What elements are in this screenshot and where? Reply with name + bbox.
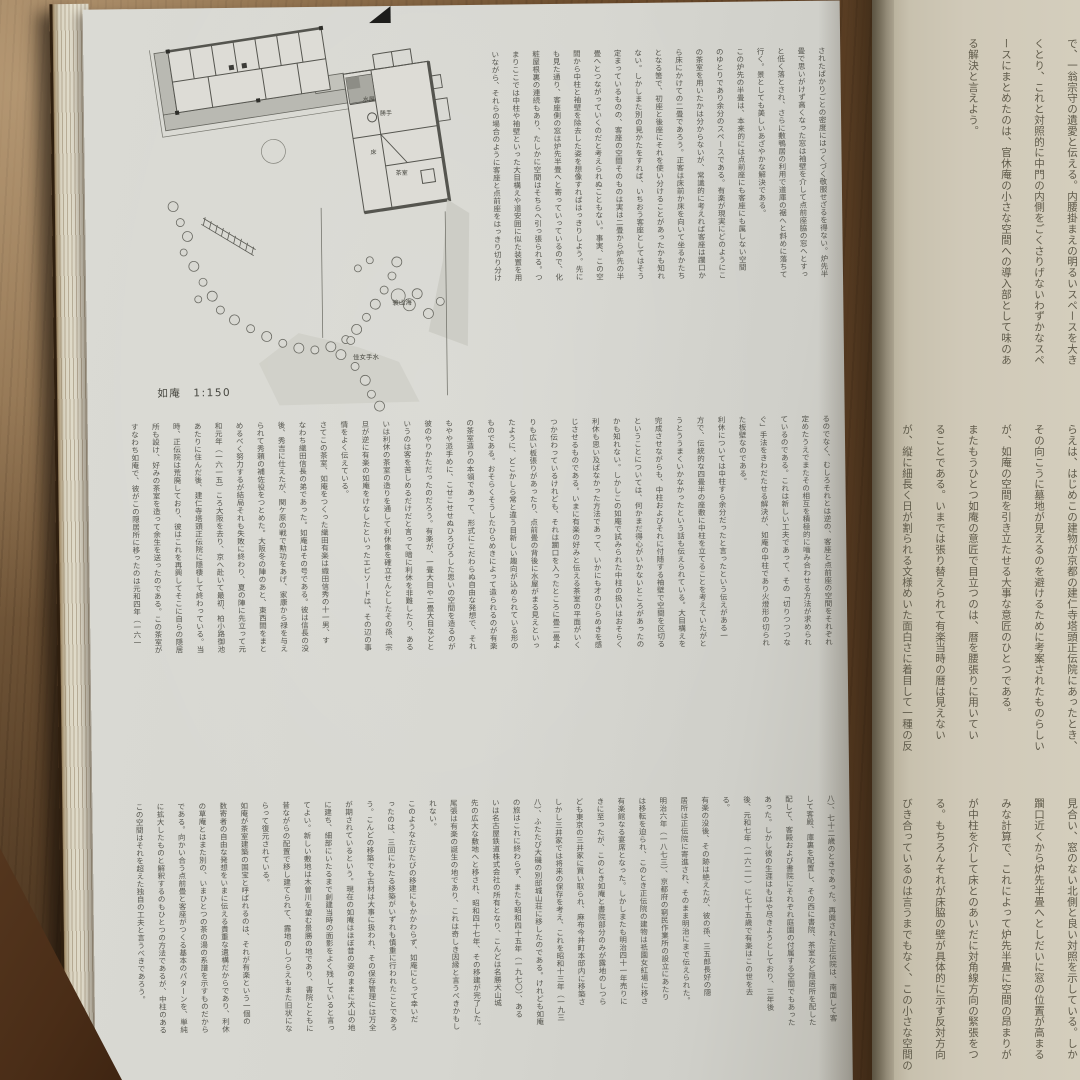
text-column: 八）、ふたたび大磯の別邸城山荘に移したのである。けれども如庵 — [526, 798, 551, 1080]
floor-plan-figure: 水屋 勝手 床 茶室 簑山海 佳女手水 如庵 1:150 — [111, 3, 481, 419]
text-column: あった。しかし彼の生涯はもはや尽きようとしており、三年後 — [757, 795, 782, 1080]
text-column: つか伝わっているけれども、それは躙口を入ったところに畳二畳よ — [542, 418, 567, 770]
text-column: 明治六年（一八七三）、京都府の窮民作業所の設立にあたり — [652, 797, 677, 1080]
text-column: みな計算で、これによって炉先半畳に空間の昂まりが — [989, 798, 1022, 1080]
text-column: りも広い板張りがあったり、点前畳の背後に水屋がまる見えといっ — [521, 418, 546, 770]
stone-pavement — [201, 217, 255, 257]
text-column: 見合い、窓のない北側と良い対照を示している。しか — [1055, 798, 1080, 1080]
text-column: ぐ」手法をきわだたせる解決が、如庵の中柱であり火燈形の切られ — [752, 415, 777, 767]
garden-label-chozu: 佳女手水 — [353, 352, 380, 361]
text-column: に拡大したものと解釈するのもひとつの方法であるが、中柱のある — [149, 803, 174, 1080]
text-column: 有楽館なる宴席となった。しかしまたも明治四十一年売りに — [610, 797, 635, 1080]
left-page: 水屋 勝手 床 茶室 簑山海 佳女手水 如庵 1:150 されたばかりごとの密度… — [83, 0, 853, 1080]
room-label-chashitsu: 茶室 — [396, 169, 408, 177]
text-column: てよい。新しい敷地は木曽川を望む景勝の地であり、書院とともに — [296, 801, 321, 1080]
text-column: 数寄者の自由な発想をいまに伝える貴重な遺構だからであり、利休 — [212, 802, 237, 1080]
right-page-upper-text-block: で、一翁宗守の遺愛と伝える。内腰掛まえの明るいスペースを大きくとり、これと対照的… — [872, 38, 1080, 390]
text-column: 彼のやりかただったのだろう。有楽が、一畳大目や二畳大目などと — [417, 419, 442, 771]
text-column: 後、元和七年（一六二一）に七十五歳で有楽はこの世を去 — [736, 796, 761, 1080]
text-column: すなわち如庵で、彼がこの隠居所に移ったのは元和四年（一六一 — [124, 423, 149, 775]
left-page-upper-text-block: されたばかりごとの密度にはつくづく敬服せざるを得ない。炉先半畳で思いがけず高くな… — [483, 47, 835, 415]
room-label-katte: 勝手 — [380, 109, 392, 117]
text-column: びき合っているのは言うまでもなく、この小さな空間の — [890, 798, 923, 1080]
text-column: らって復元されている。 — [254, 801, 279, 1080]
figure-caption: 如庵 1:150 — [157, 386, 231, 400]
text-column: の草庵とはまた別の、いまひとつの茶の湯の系譜を示すものだから — [191, 802, 216, 1080]
text-column: さてこの茶室、如庵をつくった織田有楽は織田信秀の十一男、す — [312, 421, 337, 773]
text-column: ースにまとめたのは、官休庵の小さな空間への導入部として味のあ — [989, 38, 1022, 390]
text-column: いうのは客を苦しめるだけだと言って暗に利休を非難したり、ある — [396, 420, 421, 772]
room-label-toko: 床 — [370, 148, 376, 156]
text-column: いは利休の茶室の造りを通して利休像を確立せんとしたその孫、宗 — [375, 420, 400, 772]
text-column: ったのは、三回にわたる移築がいずれも慎重に行われたことであろ — [379, 800, 404, 1080]
text-column: 先の広大な敷地へと移され、昭和四十七年、その移建が完了した。 — [463, 799, 488, 1080]
text-column: なわち織田信長の弟であった。如庵はその号である。彼は信長の没 — [291, 421, 316, 773]
text-column: ものである。おそらくそうしたひらめきによって造られるのが有楽 — [480, 419, 505, 771]
text-column: 定めたうえでまたその相互を積極的に嚙み合わせる方法が求められ — [794, 415, 819, 767]
text-column: に建ち、細部にいたるまで創建当時の面影をよく残していると言っ — [317, 801, 342, 1080]
text-column: して客殿、庫裏を配置し、その西に書院、茶室など隠居所を配した — [798, 795, 823, 1080]
left-page-middle-text-block: るのでなく、むしろそれとは逆の、客座と点前座の空間をそれぞれ定めたうえでまたその… — [124, 415, 840, 776]
text-column: この空間はそれを超えた独自の工夫と言うべきであろう。 — [128, 803, 152, 1080]
text-column: の茶室造りの本領であって、形式にこだわらぬ自由な発想で、それ — [459, 419, 484, 771]
text-column: 八）、七十二歳のときであった。再興された正伝院は、南面して客 — [819, 795, 844, 1080]
text-column: ることである。いまでは張り替えられて有楽当時の暦は見えない — [923, 424, 956, 772]
text-column: 躙口近くから炉先半畳へとしだいに窓の位置が高まる — [1022, 798, 1055, 1080]
text-column: 居所は正伝院に寄進され、そのまま明治にまで伝えられた。 — [673, 796, 698, 1080]
text-column: 利休も思い及ばなかった方法であって、いかにも才のひらめきを感 — [584, 417, 609, 769]
text-column: で、一翁宗守の遺愛と伝える。内腰掛まえの明るいスペースを大き — [1055, 38, 1080, 390]
text-column: が中柱を介して床とのあいだに対角線方向の緊張をつ — [956, 798, 989, 1080]
text-column: らえは、はじめこの建物が京都の建仁寺塔頭正伝院にあったとき、 — [1055, 424, 1080, 772]
garden-label-stone: 簑山海 — [392, 298, 412, 307]
text-column: が期されているという。現在の如庵はほぼ昔の姿のままに犬山の地 — [338, 800, 363, 1080]
text-column: 所も設け、好みの茶室を造って余生を送ったのである。この茶室が — [144, 423, 169, 775]
text-column: いは名古屋鉄道株式会社の所有となり、こんどは名勝犬山城 — [484, 799, 509, 1080]
text-column: 配して、客殿および書院にそれぞれ庭園の付属する空間でもあった — [777, 795, 802, 1080]
text-column: 尾張は有楽の誕生の地であり、これは奇しき因縁と言うべきかもし — [442, 799, 467, 1080]
text-column: その向こうに墓地が見えるのを避けるために考案されたものらしい — [1022, 424, 1055, 772]
text-column: たように、どこかしら常と違う目新しい趣向が込められている形の — [500, 418, 525, 770]
text-column: 情をよく伝えている。 — [333, 420, 358, 772]
right-page-middle-text-block: らえは、はじめこの建物が京都の建仁寺塔頭正伝院にあったとき、その向こうに墓地が見… — [872, 424, 1080, 772]
text-column: るのでなく、むしろそれとは逆の、客座と点前座の空間をそれぞれ — [815, 415, 840, 767]
text-column: ども東京の三井家に買い取られ、麻布今井町本邸内に移築さ — [568, 798, 593, 1080]
book-photo: 水屋 勝手 床 茶室 簑山海 佳女手水 如庵 1:150 されたばかりごとの密度… — [0, 0, 1080, 1080]
right-page: で、一翁宗守の遺愛と伝える。内腰掛まえの明るいスペースを大きくとり、これと対照的… — [872, 0, 1080, 1080]
text-column: またもうひとつ如庵の意匠で目立つのは、暦を腰張りに用いてい — [956, 424, 989, 772]
text-column: る解決と言えよう。 — [956, 38, 989, 390]
text-column: 有楽の没後、その跡は絶えたが、彼の孫、三五郎長好の隠 — [694, 796, 719, 1080]
text-column: る。もちろんそれが床脇の壁が具体的に示す反対方向 — [923, 798, 956, 1080]
text-column: 如庵が茶室建築の国宝と呼ばれるのは、それが有楽という一個の — [233, 802, 258, 1080]
room-label-mizuya: 水屋 — [363, 95, 375, 103]
text-column: の旅はこれに終わらず、またも昭和四十五年（一九七〇）、ある — [505, 798, 530, 1080]
text-column: 昔ながらの配置で移し建てられて、露地のしつらえもまた旧状にな — [275, 801, 300, 1080]
text-column: しかし三井家では将来の保存を考え、これを昭和十三年（一九三 — [547, 798, 572, 1080]
text-column: 旦が逆に有楽の如庵をけなしたといったエピソードは、その辺の事 — [354, 420, 379, 772]
text-column: ているのである。これは新しい工夫であって、その「切りつつつな — [773, 415, 798, 767]
text-column: きに至ったが、このとき如庵と書院部分のみが露地のしつら — [589, 797, 614, 1080]
right-page-lower-text-block: 見合い、窓のない北側と良い対照を示している。しか躙口近くから炉先半畳へとしだいに… — [872, 798, 1080, 1080]
floor-plan-svg: 水屋 勝手 床 茶室 簑山海 佳女手水 如庵 1:150 — [111, 3, 481, 419]
text-column: が、如庵の空間を引き立たせる大事な意匠のひとつである。 — [989, 424, 1022, 772]
text-column: もやや派手めに、こせこせせぬひろびろした思いの空間を造るのが — [438, 419, 463, 771]
text-column: が、縦に細長く日が割られる文様めいた面白さに着目して一種の反 — [890, 424, 923, 772]
text-column: くとり、これと対照的に中門の内側をごくさりげないわずかなスペ — [1022, 38, 1055, 390]
text-column: は移転を迫られ、このとき正伝院の建物は祇園女紅場に移さ — [631, 797, 656, 1080]
garden-slope-shading — [427, 199, 471, 347]
left-page-lower-text-block: 八）、七十二歳のときであった。再興された正伝院は、南面して客して客殿、庫裏を配置… — [128, 795, 844, 1080]
text-column: このようなたびたびの移建にもかかわらず、如庵にとって幸いだ — [400, 800, 425, 1080]
text-column: である。向かい合う点前畳と客座がつくる基本のパターンを、単純 — [170, 802, 195, 1080]
text-column: じさせるものである。いまに有楽の好みと伝える茶室の平面がいく — [563, 418, 588, 770]
text-column: う。こんどの移築でも古材は大事に扱われ、その保存管理には万全 — [358, 800, 383, 1080]
